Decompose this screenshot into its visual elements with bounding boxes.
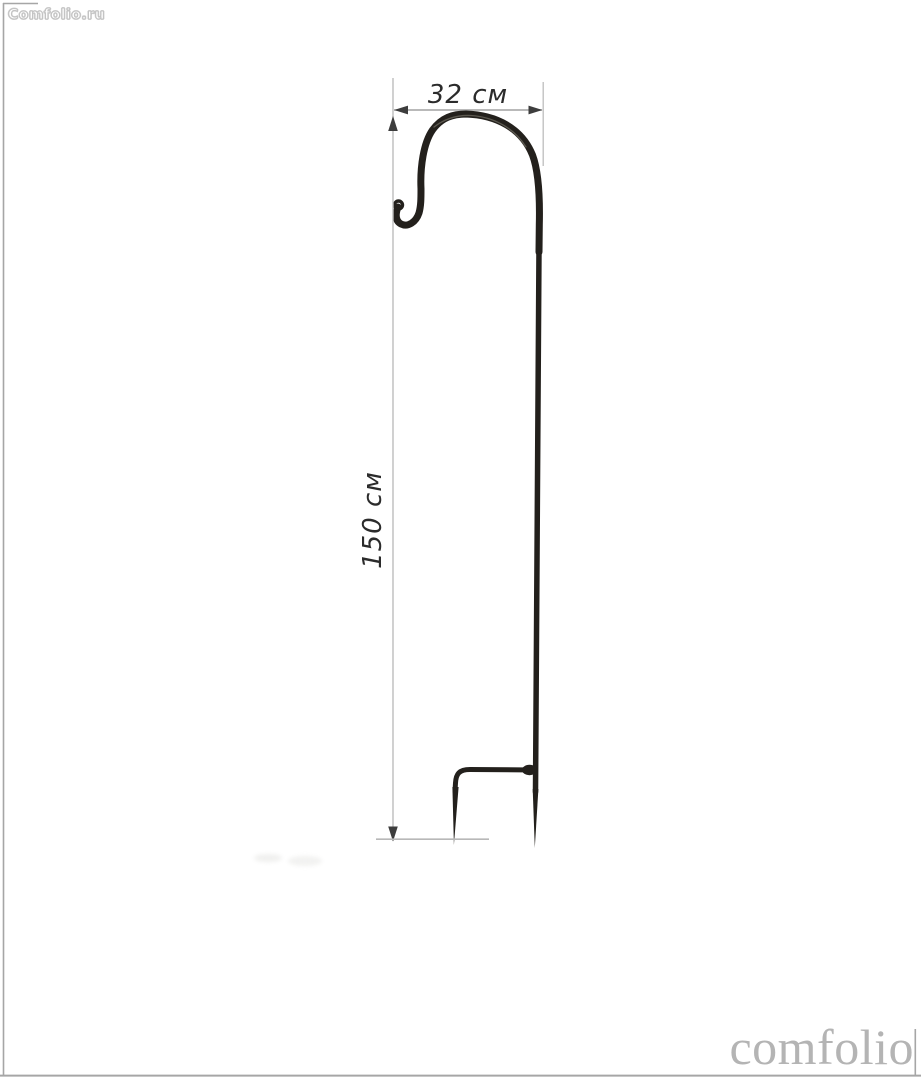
product-photo-canvas: 150 см 32 см Comfolio.ru comfolio	[0, 0, 921, 1080]
prong-ground-spike	[452, 787, 458, 845]
arrowhead-up-icon	[388, 116, 398, 131]
main-pole	[536, 248, 540, 792]
pole-ground-spike	[533, 789, 539, 848]
frame-marks	[0, 3, 921, 1076]
arrowhead-left-icon	[394, 106, 408, 115]
step-crossbar	[455, 770, 535, 792]
width-dimension: 32 см	[394, 80, 543, 166]
shadow-smudge	[288, 856, 322, 866]
hook-crook-arch	[396, 114, 539, 252]
floor-shadows	[254, 854, 322, 866]
shepherd-hook-product	[395, 114, 540, 848]
product-dimension-diagram: 150 см 32 см	[0, 0, 921, 1080]
width-dimension-label: 32 см	[428, 80, 508, 110]
watermark-site-url: Comfolio.ru	[8, 7, 105, 23]
watermark-brand: comfolio	[729, 1022, 914, 1072]
arrowhead-right-icon	[529, 106, 543, 115]
shadow-smudge	[254, 854, 282, 862]
height-dimension-label: 150 см	[358, 471, 388, 569]
crossbar-weld-joint	[522, 765, 537, 775]
